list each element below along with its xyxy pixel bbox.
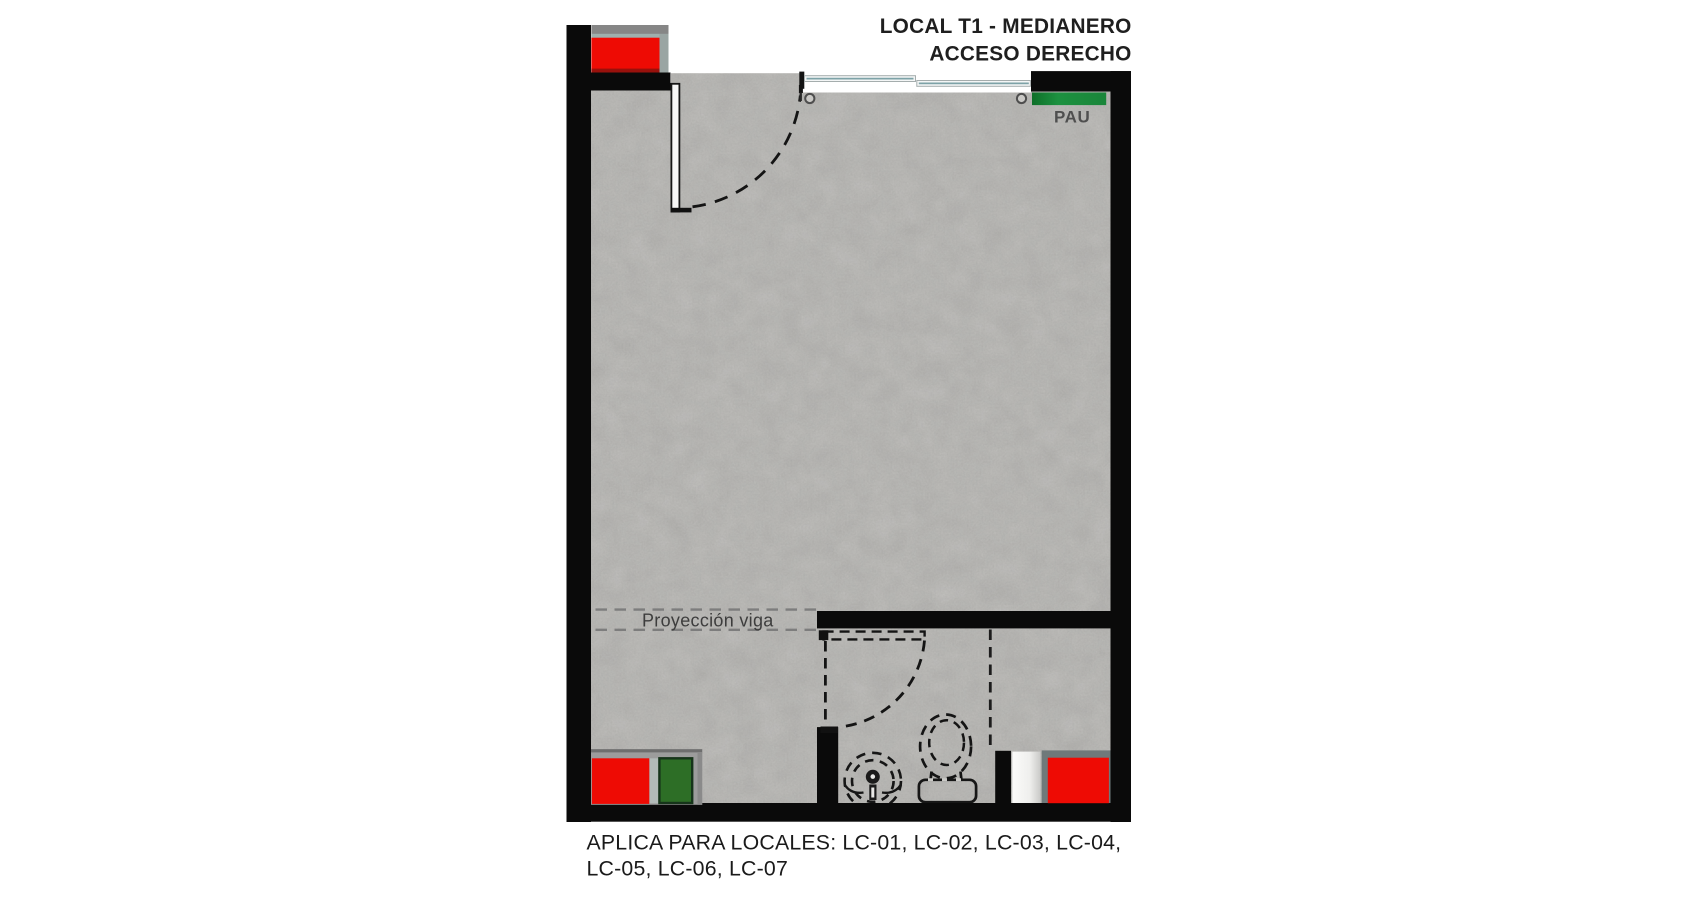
- svg-text:Proyección viga: Proyección viga: [642, 611, 774, 631]
- svg-text:LC-05, LC-06, LC-07: LC-05, LC-06, LC-07: [587, 857, 788, 881]
- svg-text:LOCAL T1 - MEDIANERO: LOCAL T1 - MEDIANERO: [880, 15, 1132, 38]
- svg-text:PAU: PAU: [1054, 108, 1090, 127]
- svg-text:APLICA PARA LOCALES: LC-01, LC: APLICA PARA LOCALES: LC-01, LC-02, LC-03…: [587, 831, 1122, 855]
- svg-text:ACCESO DERECHO: ACCESO DERECHO: [929, 42, 1131, 65]
